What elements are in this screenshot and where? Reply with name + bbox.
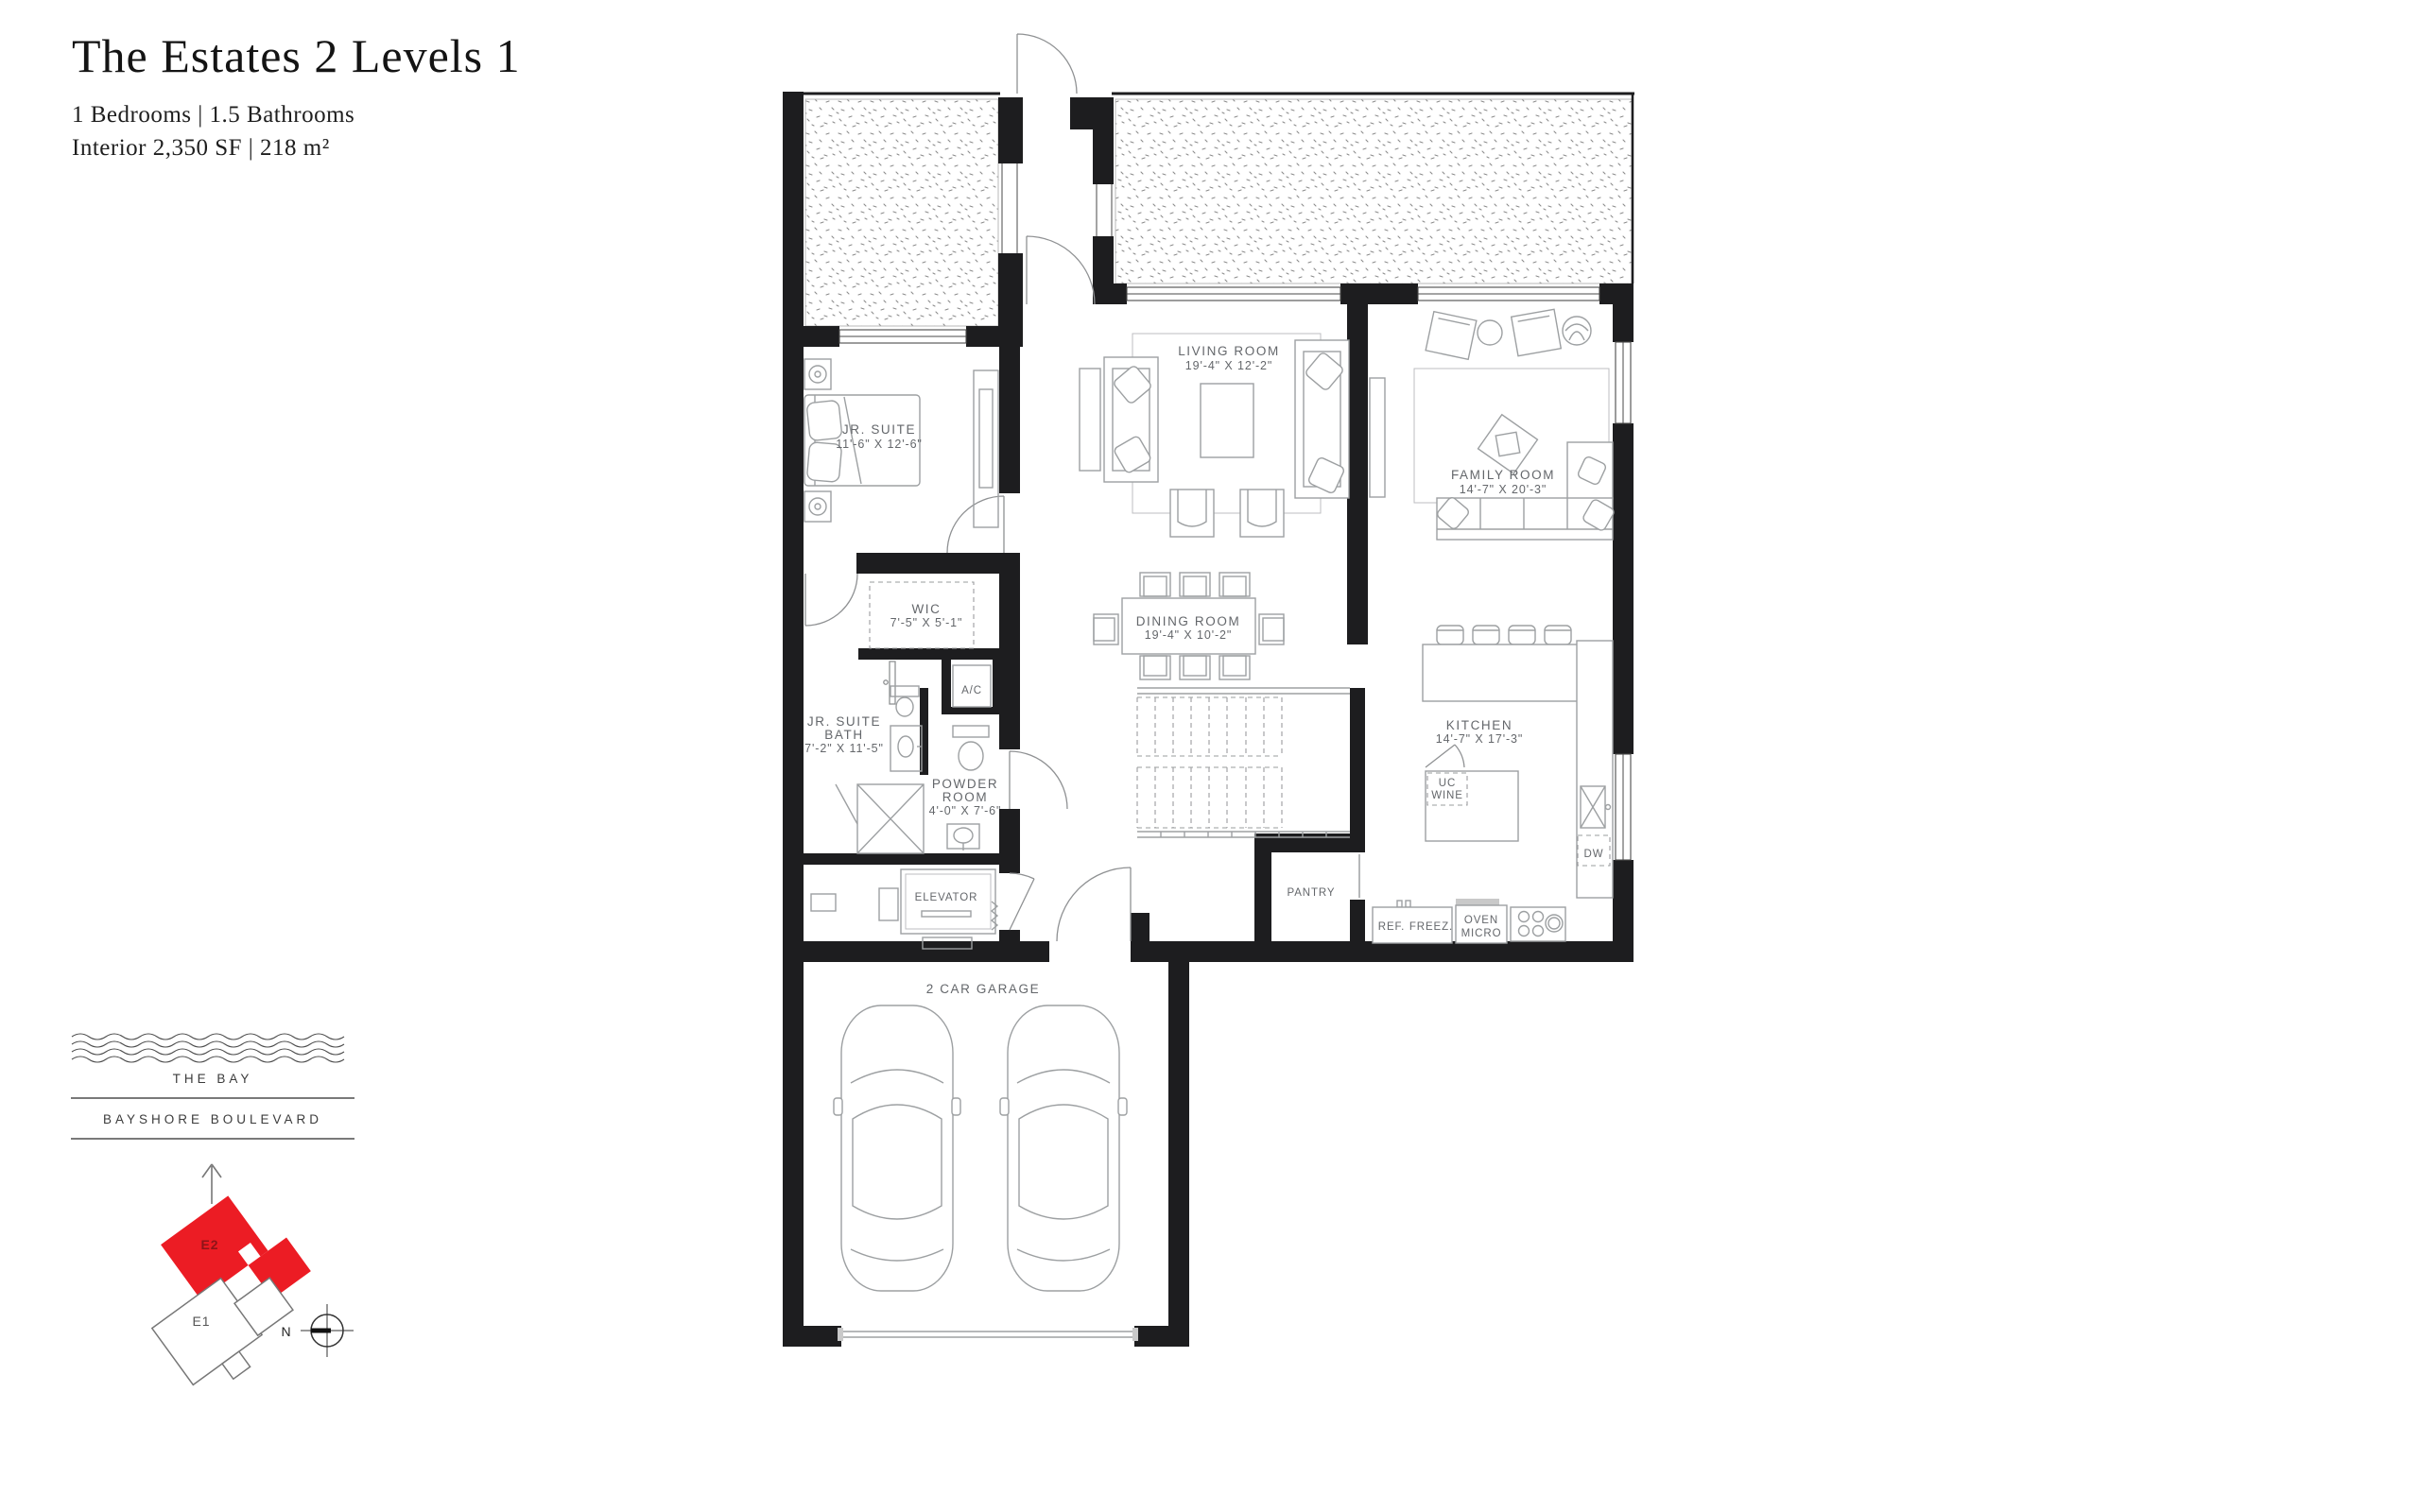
map-label-boulevard: BAYSHORE BOULEVARD — [103, 1112, 322, 1126]
fixture-label-dw: DW — [1584, 849, 1604, 860]
jr-bath-fixtures — [836, 686, 924, 853]
kitchen-fixtures — [1373, 626, 1613, 943]
fixture-label-ac: A/C — [961, 685, 982, 696]
fixture-label-uc-wine-2: WINE — [1431, 790, 1463, 801]
building-label-e1: E1 — [192, 1314, 210, 1329]
room-label-living: LIVING ROOM — [1178, 344, 1280, 358]
room-label-garage: 2 CAR GARAGE — [926, 982, 1040, 996]
room-dims-living: 19'-4" X 12'-2" — [1185, 359, 1272, 372]
room-label-powder-1: POWDER — [932, 777, 998, 791]
compass-icon: N — [281, 1304, 354, 1357]
north-arrow-icon — [202, 1164, 221, 1204]
room-dims-kitchen: 14'-7" X 17'-3" — [1436, 732, 1523, 746]
elevator — [811, 869, 997, 949]
room-label-kitchen: KITCHEN — [1446, 718, 1512, 732]
garage — [834, 1005, 1138, 1341]
building-label-e2: E2 — [200, 1237, 218, 1252]
floor-plan-drawing: JR. SUITE 11'-6" X 12'-6" LIVING ROOM 19… — [0, 0, 2420, 1512]
fixture-label-oven: OVEN — [1464, 915, 1498, 926]
room-dims-jr-suite: 11'-6" X 12'-6" — [836, 438, 923, 451]
water-waves-icon — [72, 1034, 344, 1062]
map-label-bay: THE BAY — [173, 1072, 253, 1086]
fixture-label-pantry: PANTRY — [1288, 887, 1336, 899]
site-locator-map: THE BAY BAYSHORE BOULEVARD E2 E1 N — [71, 1034, 354, 1400]
room-dims-wic: 7'-5" X 5'-1" — [890, 616, 963, 629]
room-dims-jr-bath: 7'-2" X 11'-5" — [804, 742, 884, 755]
room-dims-family: 14'-7" X 20'-3" — [1460, 483, 1547, 496]
room-label-dining: DINING ROOM — [1136, 614, 1241, 628]
room-dims-dining: 19'-4" X 10'-2" — [1145, 628, 1232, 642]
room-label-jr-bath-2: BATH — [824, 728, 863, 742]
car-left — [834, 1005, 960, 1291]
staircase — [1137, 688, 1350, 837]
room-label-powder-2: ROOM — [942, 790, 988, 804]
fixture-label-micro: MICRO — [1461, 928, 1502, 939]
family-room-furniture — [1370, 309, 1616, 540]
room-dims-powder: 4'-0" X 7'-6" — [929, 804, 1002, 817]
fixture-label-freez: FREEZ. — [1409, 921, 1453, 933]
fixture-label-uc-wine-1: UC — [1439, 778, 1456, 789]
room-label-jr-bath-1: JR. SUITE — [807, 714, 881, 729]
room-label-wic: WIC — [911, 602, 941, 616]
fixture-label-ref: REF. — [1378, 921, 1406, 933]
floorplan-page: { "header": { "title": "The Estates 2 Le… — [0, 0, 2420, 1512]
car-right — [1000, 1005, 1127, 1291]
room-label-family: FAMILY ROOM — [1451, 468, 1555, 482]
fixture-label-elevator: ELEVATOR — [915, 892, 978, 903]
room-label-jr-suite: JR. SUITE — [842, 422, 916, 437]
compass-north-label: N — [281, 1324, 291, 1339]
